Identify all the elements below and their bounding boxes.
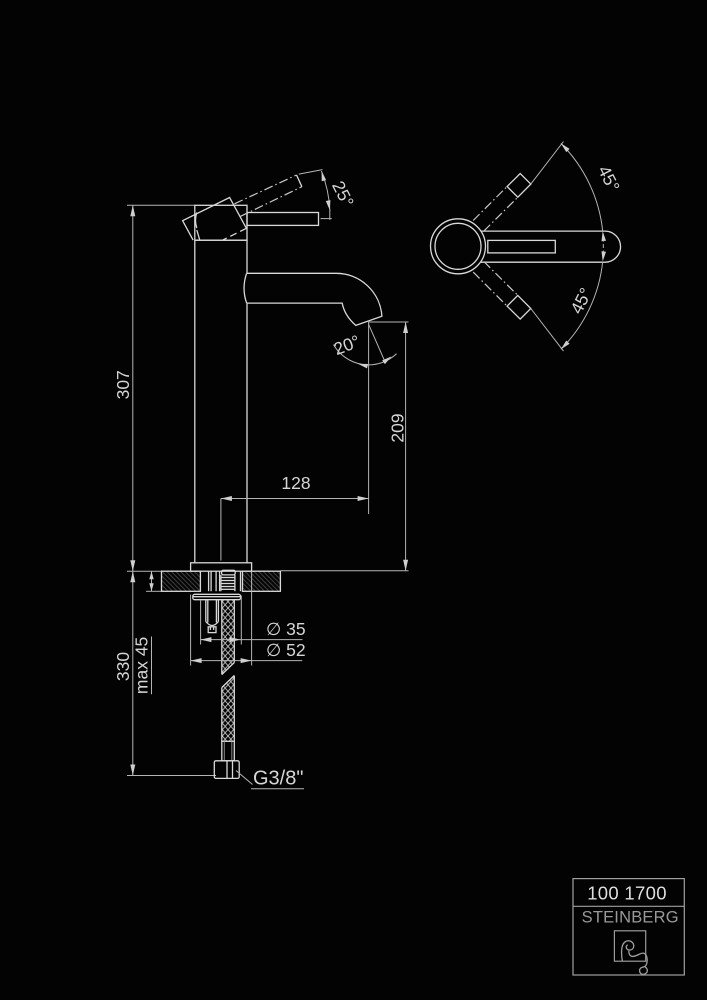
svg-text:∅ 35: ∅ 35 (266, 619, 306, 639)
svg-text:∅ 52: ∅ 52 (266, 640, 306, 660)
svg-text:209: 209 (387, 413, 407, 442)
svg-text:G3/8": G3/8" (253, 768, 303, 790)
svg-text:STEINBERG: STEINBERG (582, 909, 679, 927)
svg-text:330: 330 (113, 652, 133, 681)
svg-text:100 1700: 100 1700 (587, 883, 667, 904)
svg-text:307: 307 (113, 370, 133, 399)
svg-text:128: 128 (281, 473, 310, 493)
svg-text:max 45: max 45 (132, 637, 152, 694)
